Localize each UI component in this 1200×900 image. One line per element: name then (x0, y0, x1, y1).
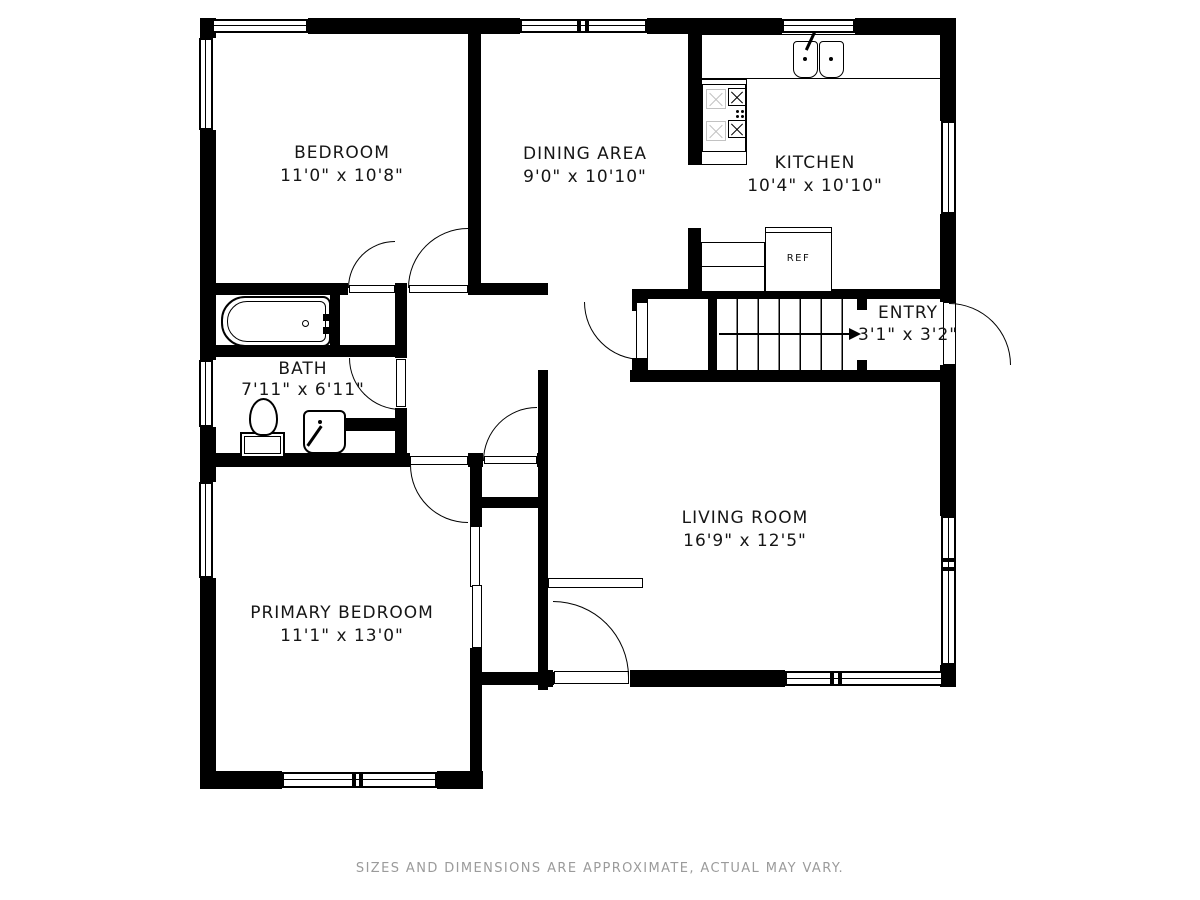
wall (538, 370, 548, 690)
wall (200, 130, 216, 360)
hall-closet-door-arc (483, 407, 537, 461)
bedroom-door-arc (408, 228, 468, 288)
refrigerator-label: REF (765, 253, 832, 264)
window-mullion (585, 19, 589, 33)
stove-knob (736, 110, 739, 113)
window-mullion (941, 567, 956, 571)
wall (940, 18, 956, 121)
window-mullion (941, 558, 956, 562)
tub-faucet-icon (323, 314, 332, 321)
stove-burner (706, 89, 726, 109)
wall (470, 453, 482, 527)
wall (308, 18, 520, 34)
room-label-primary: PRIMARY BEDROOM 11'1" x 13'0" (242, 602, 442, 648)
room-label-bath: BATH 7'11" x 6'11" (203, 359, 403, 401)
room-dims: 16'9" x 12'5" (645, 530, 845, 553)
front-door-arc (949, 303, 1011, 365)
sink-drain (829, 57, 833, 61)
window (199, 482, 213, 578)
wall (632, 358, 648, 382)
counter-edge (702, 266, 764, 267)
stair-railing (548, 578, 643, 588)
stair-hall-door-arc (584, 302, 642, 360)
stair-direction-line (719, 333, 851, 335)
window (199, 38, 213, 130)
primary-bedroom-door-arc (410, 465, 468, 523)
stove-burner (728, 88, 746, 106)
wall (688, 34, 701, 165)
room-name: LIVING ROOM (645, 507, 845, 530)
wall (470, 648, 482, 788)
wall (468, 32, 481, 283)
wall (537, 453, 548, 467)
room-name: DINING AREA (485, 143, 685, 166)
kitchen-counter (701, 242, 765, 292)
window (212, 19, 308, 33)
window-mullion (352, 772, 356, 788)
window (782, 19, 855, 33)
room-label-bedroom: BEDROOM 11'0" x 10'8" (242, 142, 442, 188)
room-dims: 7'11" x 6'11" (203, 380, 403, 401)
tub-faucet-icon (323, 327, 332, 334)
stove-burner (706, 121, 726, 141)
room-label-entry: ENTRY 3'1" x 3'2" (858, 302, 958, 346)
wall (200, 771, 282, 789)
wall (210, 283, 348, 295)
wall (857, 360, 867, 382)
room-name: BEDROOM (242, 142, 442, 165)
bathtub-inner (227, 301, 326, 342)
toilet-tank-inner (244, 436, 281, 454)
floor-plan: REF BEDROOM 11'0" x 10'8" DINING AREA 9'… (0, 0, 1200, 900)
stove-knob (736, 115, 739, 118)
closet-sliding-door (472, 585, 482, 648)
refrigerator-top-line (766, 232, 831, 233)
room-dims: 11'0" x 10'8" (242, 165, 442, 188)
room-name: KITCHEN (715, 152, 915, 175)
room-label-living: LIVING ROOM 16'9" x 12'5" (645, 507, 845, 553)
wall (943, 670, 956, 687)
window (520, 19, 647, 33)
wall (708, 291, 717, 373)
wall (340, 418, 407, 431)
wall (630, 670, 785, 687)
wall (208, 453, 410, 467)
sink-drain (803, 57, 807, 61)
wall (647, 18, 782, 34)
wall (688, 228, 701, 290)
room-dims: 3'1" x 3'2" (858, 324, 958, 346)
room-dims: 9'0" x 10'10" (485, 166, 685, 189)
disclaimer-text: SIZES AND DIMENSIONS ARE APPROXIMATE, AC… (300, 861, 900, 876)
bedroom-closet-door-arc (348, 241, 395, 288)
room-name: PRIMARY BEDROOM (242, 602, 442, 625)
room-label-kitchen: KITCHEN 10'4" x 10'10" (715, 152, 915, 198)
sink-drain (318, 420, 322, 424)
tub-drain (302, 320, 309, 327)
window-mullion (577, 19, 581, 33)
room-dims: 10'4" x 10'10" (715, 175, 915, 198)
stove-knob (741, 110, 744, 113)
wall (630, 370, 941, 382)
wall (470, 672, 554, 685)
room-dims: 11'1" x 13'0" (242, 625, 442, 648)
toilet-bowl (249, 398, 278, 436)
room-name: BATH (203, 359, 403, 380)
window (785, 671, 943, 686)
stove-knob (741, 115, 744, 118)
room-label-dining: DINING AREA 9'0" x 10'10" (485, 143, 685, 189)
window-mullion (830, 671, 834, 686)
back-door-arc (553, 601, 629, 677)
room-name: ENTRY (858, 302, 958, 324)
wall (200, 578, 216, 789)
wall (940, 365, 956, 516)
wall (468, 283, 548, 295)
window-mullion (359, 772, 363, 788)
primary-bedroom-door-panel (410, 456, 468, 465)
wall (940, 214, 956, 302)
window (941, 121, 956, 214)
closet-sliding-door (470, 526, 480, 587)
window-mullion (838, 671, 842, 686)
window (941, 516, 956, 665)
stove-burner (728, 120, 746, 138)
bathroom-sink (303, 410, 346, 454)
